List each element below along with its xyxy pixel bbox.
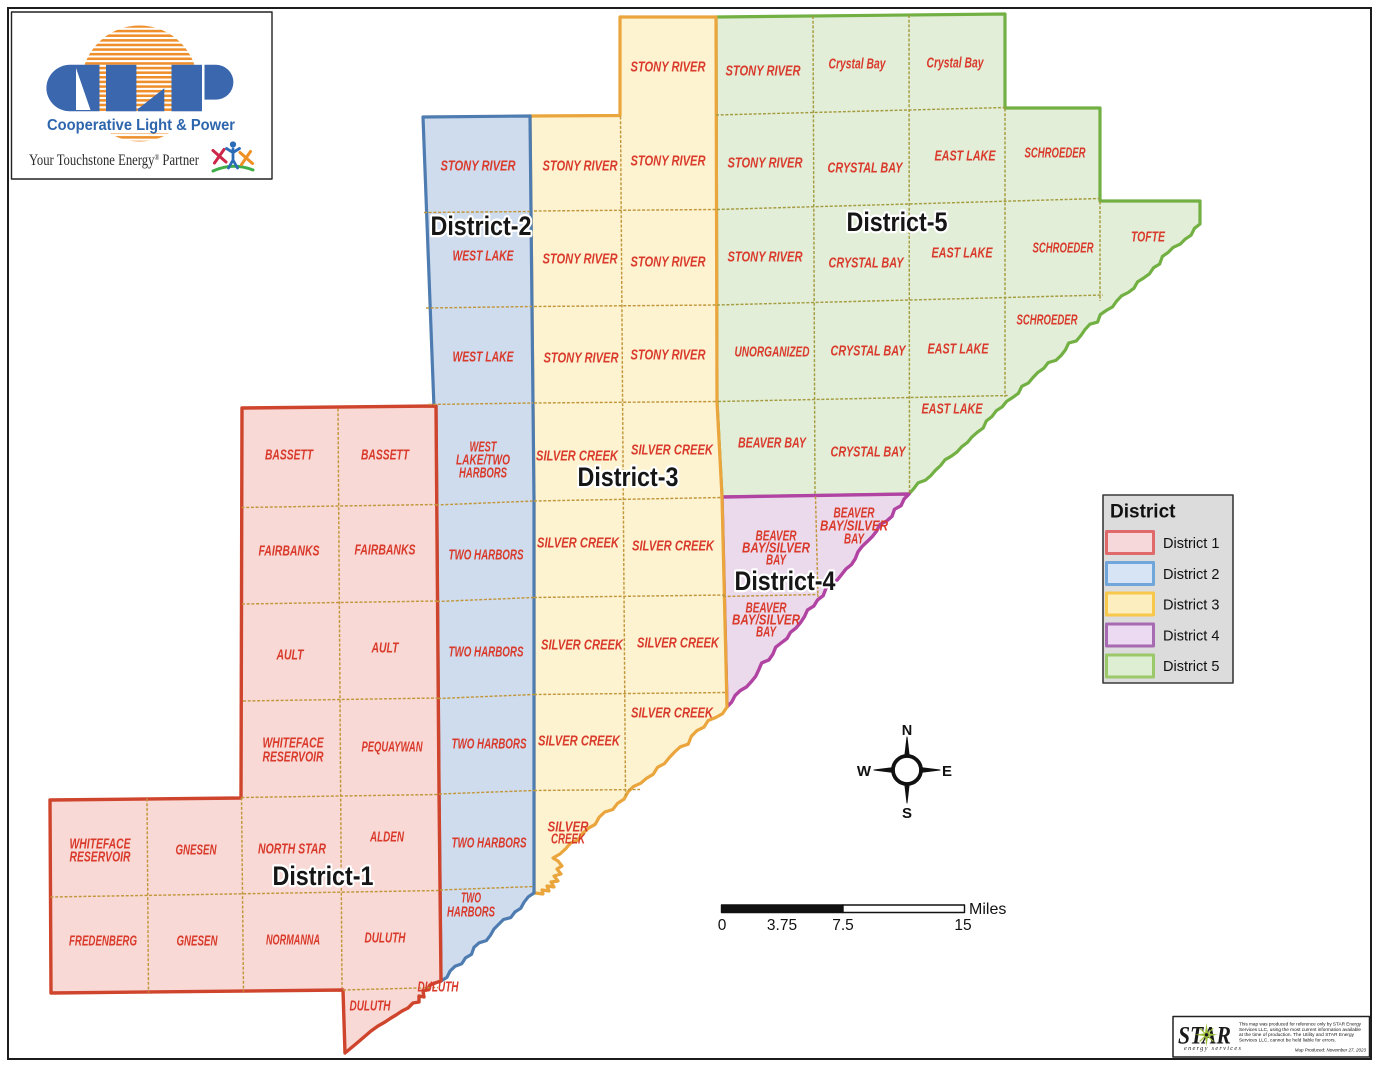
svg-text:STONY RIVER: STONY RIVER bbox=[441, 159, 516, 175]
svg-text:District 5: District 5 bbox=[1163, 659, 1219, 675]
svg-text:S: S bbox=[902, 805, 912, 822]
svg-text:FREDENBERG: FREDENBERG bbox=[69, 934, 137, 950]
svg-text:EAST LAKE: EAST LAKE bbox=[922, 402, 984, 418]
svg-text:STONY RIVER: STONY RIVER bbox=[543, 252, 618, 268]
svg-text:Services LLC, cannot be held l: Services LLC, cannot be held liable for … bbox=[1239, 1037, 1336, 1042]
svg-text:GNESEN: GNESEN bbox=[177, 934, 218, 950]
svg-text:STONY RIVER: STONY RIVER bbox=[631, 348, 706, 364]
svg-text:STONY RIVER: STONY RIVER bbox=[728, 250, 803, 266]
svg-text:District 4: District 4 bbox=[1163, 629, 1219, 645]
svg-text:District-3: District-3 bbox=[578, 462, 679, 492]
svg-text:CRYSTAL BAY: CRYSTAL BAY bbox=[829, 256, 905, 272]
svg-text:E: E bbox=[942, 763, 952, 780]
svg-text:FAIRBANKS: FAIRBANKS bbox=[259, 544, 320, 560]
svg-text:Your Touchstone Energy® Partne: Your Touchstone Energy® Partner bbox=[29, 152, 200, 169]
svg-text:GNESEN: GNESEN bbox=[176, 843, 217, 859]
svg-text:WEST LAKE: WEST LAKE bbox=[453, 350, 515, 366]
svg-text:STONY RIVER: STONY RIVER bbox=[631, 60, 706, 76]
svg-text:This map was produced for refe: This map was produced for reference only… bbox=[1239, 1022, 1362, 1027]
svg-text:Crystal Bay: Crystal Bay bbox=[927, 56, 985, 72]
svg-text:SCHROEDER: SCHROEDER bbox=[1025, 146, 1086, 162]
svg-text:TWO HARBORS: TWO HARBORS bbox=[452, 836, 527, 852]
svg-text:EAST LAKE: EAST LAKE bbox=[935, 149, 997, 165]
svg-text:Miles: Miles bbox=[969, 901, 1006, 918]
svg-text:SILVER CREEK: SILVER CREEK bbox=[637, 636, 720, 652]
svg-text:District 2: District 2 bbox=[1163, 567, 1219, 583]
svg-text:CRYSTAL BAY: CRYSTAL BAY bbox=[831, 344, 907, 360]
svg-text:STONY RIVER: STONY RIVER bbox=[544, 351, 619, 367]
svg-text:STONY RIVER: STONY RIVER bbox=[728, 156, 803, 172]
svg-text:District-2: District-2 bbox=[431, 211, 532, 241]
svg-text:DULUTH: DULUTH bbox=[418, 980, 459, 996]
svg-text:TWO HARBORS: TWO HARBORS bbox=[452, 737, 527, 753]
svg-text:0: 0 bbox=[718, 917, 727, 934]
svg-text:District-1: District-1 bbox=[273, 861, 374, 891]
svg-text:District: District bbox=[1110, 502, 1176, 523]
svg-text:WHITEFACERESERVOIR: WHITEFACERESERVOIR bbox=[263, 736, 325, 766]
svg-text:N: N bbox=[902, 723, 912, 739]
svg-text:BASSETT: BASSETT bbox=[265, 448, 314, 464]
svg-text:SILVER CREEK: SILVER CREEK bbox=[541, 638, 624, 654]
svg-text:SCHROEDER: SCHROEDER bbox=[1033, 241, 1094, 257]
svg-text:SILVER CREEK: SILVER CREEK bbox=[631, 706, 714, 722]
svg-text:energy services: energy services bbox=[1184, 1045, 1242, 1052]
svg-text:W: W bbox=[857, 763, 872, 780]
svg-text:SILVERCREEK: SILVERCREEK bbox=[548, 820, 589, 848]
svg-text:UNORGANIZED: UNORGANIZED bbox=[735, 345, 810, 361]
svg-text:DULUTH: DULUTH bbox=[350, 999, 391, 1015]
svg-text:Crystal Bay: Crystal Bay bbox=[829, 57, 887, 73]
svg-text:STONY RIVER: STONY RIVER bbox=[726, 64, 801, 80]
svg-text:AULT: AULT bbox=[371, 641, 400, 657]
svg-text:District 1: District 1 bbox=[1163, 536, 1219, 552]
svg-text:CRYSTAL BAY: CRYSTAL BAY bbox=[828, 161, 904, 177]
svg-text:WEST LAKE: WEST LAKE bbox=[453, 249, 515, 265]
svg-text:Map Produced: November 27, 202: Map Produced: November 27, 2023 bbox=[1295, 1048, 1367, 1053]
svg-text:at the time of production. The: at the time of production. The Utility a… bbox=[1239, 1032, 1355, 1037]
svg-text:CRYSTAL BAY: CRYSTAL BAY bbox=[831, 445, 907, 461]
svg-text:STONY RIVER: STONY RIVER bbox=[631, 255, 706, 271]
svg-text:SILVER CREEK: SILVER CREEK bbox=[537, 536, 620, 552]
svg-text:DULUTH: DULUTH bbox=[365, 931, 406, 947]
svg-text:Cooperative Light & Power: Cooperative Light & Power bbox=[47, 117, 235, 134]
svg-text:PEQUAYWAN: PEQUAYWAN bbox=[362, 740, 423, 756]
svg-text:EAST LAKE: EAST LAKE bbox=[928, 342, 990, 358]
svg-text:District-5: District-5 bbox=[847, 207, 948, 237]
svg-text:7.5: 7.5 bbox=[832, 917, 854, 934]
svg-text:District 3: District 3 bbox=[1163, 598, 1219, 614]
svg-text:ALDEN: ALDEN bbox=[369, 830, 404, 846]
svg-text:District-4: District-4 bbox=[735, 566, 836, 596]
svg-text:WHITEFACERESERVOIR: WHITEFACERESERVOIR bbox=[70, 837, 132, 866]
svg-text:SILVER CREEK: SILVER CREEK bbox=[538, 734, 621, 750]
svg-text:EAST LAKE: EAST LAKE bbox=[932, 246, 994, 262]
svg-text:STONY RIVER: STONY RIVER bbox=[543, 159, 618, 175]
svg-text:SILVER CREEK: SILVER CREEK bbox=[632, 539, 715, 555]
svg-text:SCHROEDER: SCHROEDER bbox=[1017, 313, 1078, 329]
svg-text:AULT: AULT bbox=[276, 648, 305, 664]
svg-text:BASSETT: BASSETT bbox=[361, 448, 410, 464]
svg-text:Services LLC, using the most c: Services LLC, using the most current inf… bbox=[1239, 1027, 1361, 1032]
svg-text:SILVER CREEK: SILVER CREEK bbox=[631, 443, 714, 459]
svg-text:STONY RIVER: STONY RIVER bbox=[631, 154, 706, 170]
svg-text:NORMANNA: NORMANNA bbox=[266, 933, 320, 949]
svg-text:FAIRBANKS: FAIRBANKS bbox=[355, 543, 416, 559]
svg-text:TWO HARBORS: TWO HARBORS bbox=[449, 645, 524, 661]
svg-text:15: 15 bbox=[954, 917, 971, 934]
svg-text:NORTH STAR: NORTH STAR bbox=[258, 842, 326, 858]
svg-text:TOFTE: TOFTE bbox=[1131, 230, 1166, 246]
svg-text:3.75: 3.75 bbox=[767, 917, 797, 934]
svg-text:TWO HARBORS: TWO HARBORS bbox=[449, 548, 524, 564]
svg-text:BEAVER BAY: BEAVER BAY bbox=[738, 436, 807, 452]
